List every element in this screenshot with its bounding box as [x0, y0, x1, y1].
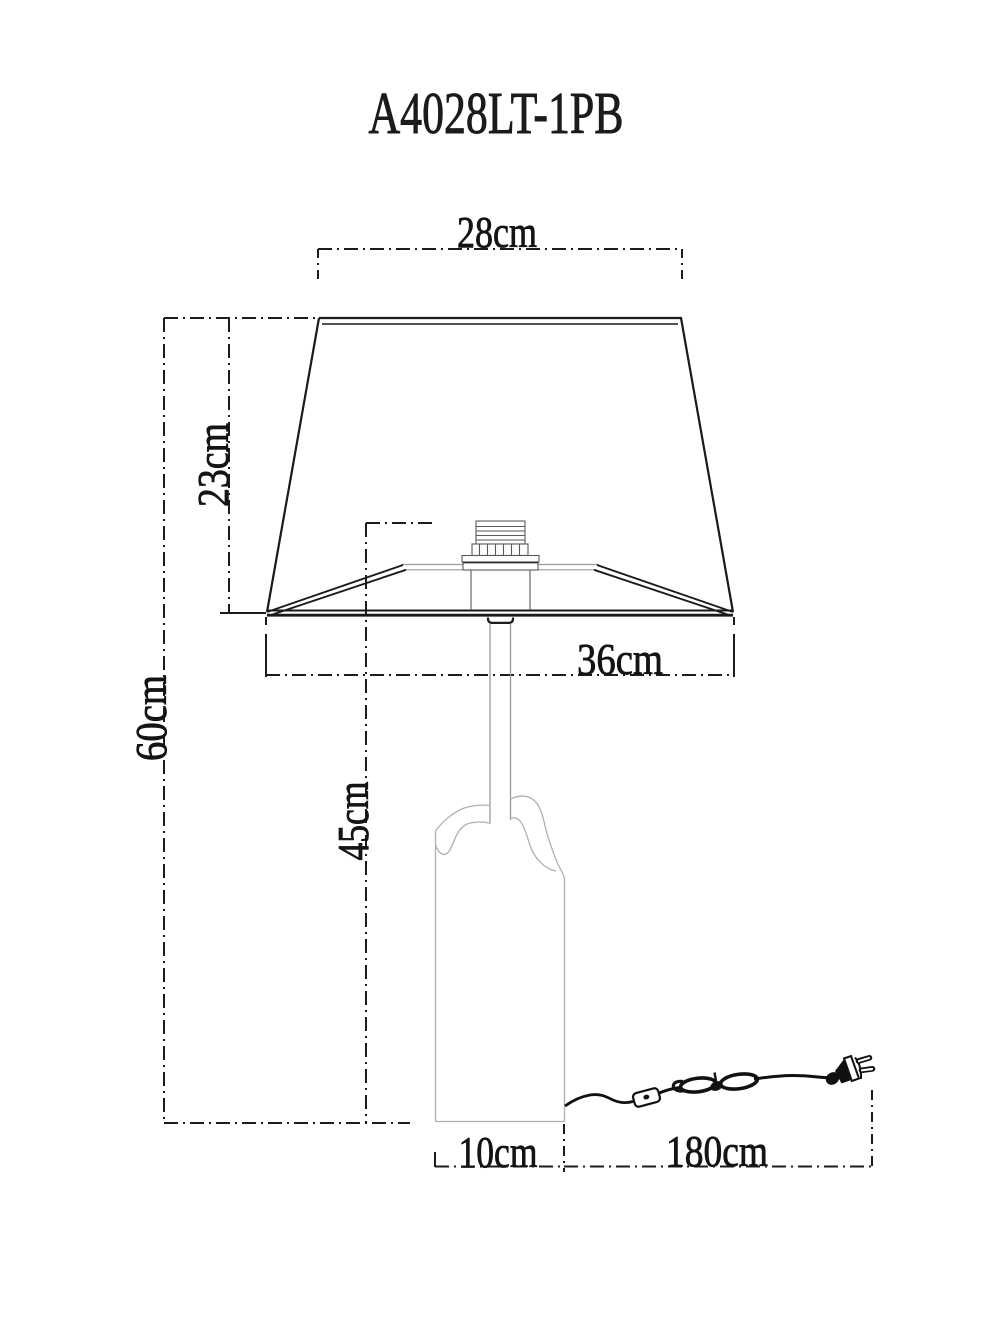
svg-text:180cm: 180cm [666, 1127, 768, 1176]
svg-text:28cm: 28cm [457, 208, 537, 257]
svg-text:45cm: 45cm [329, 782, 378, 861]
svg-text:10cm: 10cm [459, 1128, 538, 1177]
svg-text:A4028LT-1PB: A4028LT-1PB [369, 80, 624, 146]
svg-text:36cm: 36cm [577, 635, 663, 684]
svg-text:60cm: 60cm [127, 675, 176, 761]
svg-text:23cm: 23cm [189, 423, 238, 507]
